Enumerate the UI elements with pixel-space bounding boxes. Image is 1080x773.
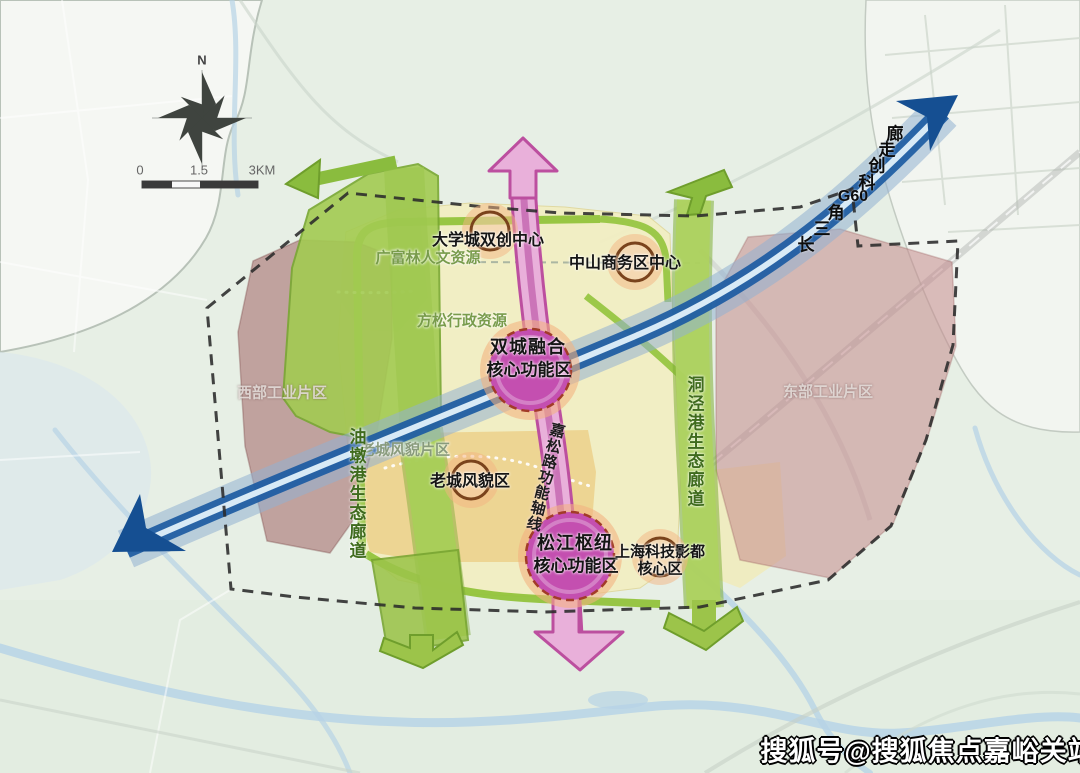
east-industrial-label: 东部工业片区 bbox=[783, 381, 873, 402]
west-industrial-label: 西部工业片区 bbox=[237, 382, 327, 403]
songjiang-core-label-line2: 核心功能区 bbox=[534, 552, 619, 577]
planning-map: N 0 1.5 3KM 长 三 角 G60 科 创 走 廊 大学城双创中心 中山… bbox=[0, 0, 1080, 773]
west-eco-corridor-label: 油墩港生态廊道 bbox=[344, 428, 369, 561]
g60-label-char: 廊 bbox=[887, 120, 904, 145]
scale-end-label: 3KM bbox=[249, 163, 276, 178]
laocheng-district-label: 老城风貌片区 bbox=[360, 439, 450, 460]
zhongshan-node-label: 中山商务区中心 bbox=[569, 249, 681, 273]
g60-label-char: 长 bbox=[798, 231, 815, 256]
yingdu-node-label-line2: 核心区 bbox=[637, 558, 682, 579]
laocheng-node-label: 老城风貌区 bbox=[430, 467, 510, 491]
scale-start-label: 0 bbox=[136, 163, 143, 178]
watermark: 搜狐号@搜狐焦点嘉峪关站 bbox=[760, 730, 1080, 769]
shuangcheng-core-label-line2: 核心功能区 bbox=[487, 356, 572, 381]
label-layer: N 0 1.5 3KM 长 三 角 G60 科 创 走 廊 大学城双创中心 中山… bbox=[0, 0, 1080, 773]
jiasong-axis-label: 嘉松路功能轴线 bbox=[521, 420, 568, 534]
scale-middle-label: 1.5 bbox=[190, 163, 208, 178]
east-eco-corridor-label: 洞泾港生态廊道 bbox=[682, 376, 707, 509]
guangfulin-area-label: 广富林人文资源 bbox=[375, 247, 480, 268]
fangsong-area-label: 方松行政资源 bbox=[417, 310, 507, 331]
compass-north-label: N bbox=[197, 53, 206, 68]
